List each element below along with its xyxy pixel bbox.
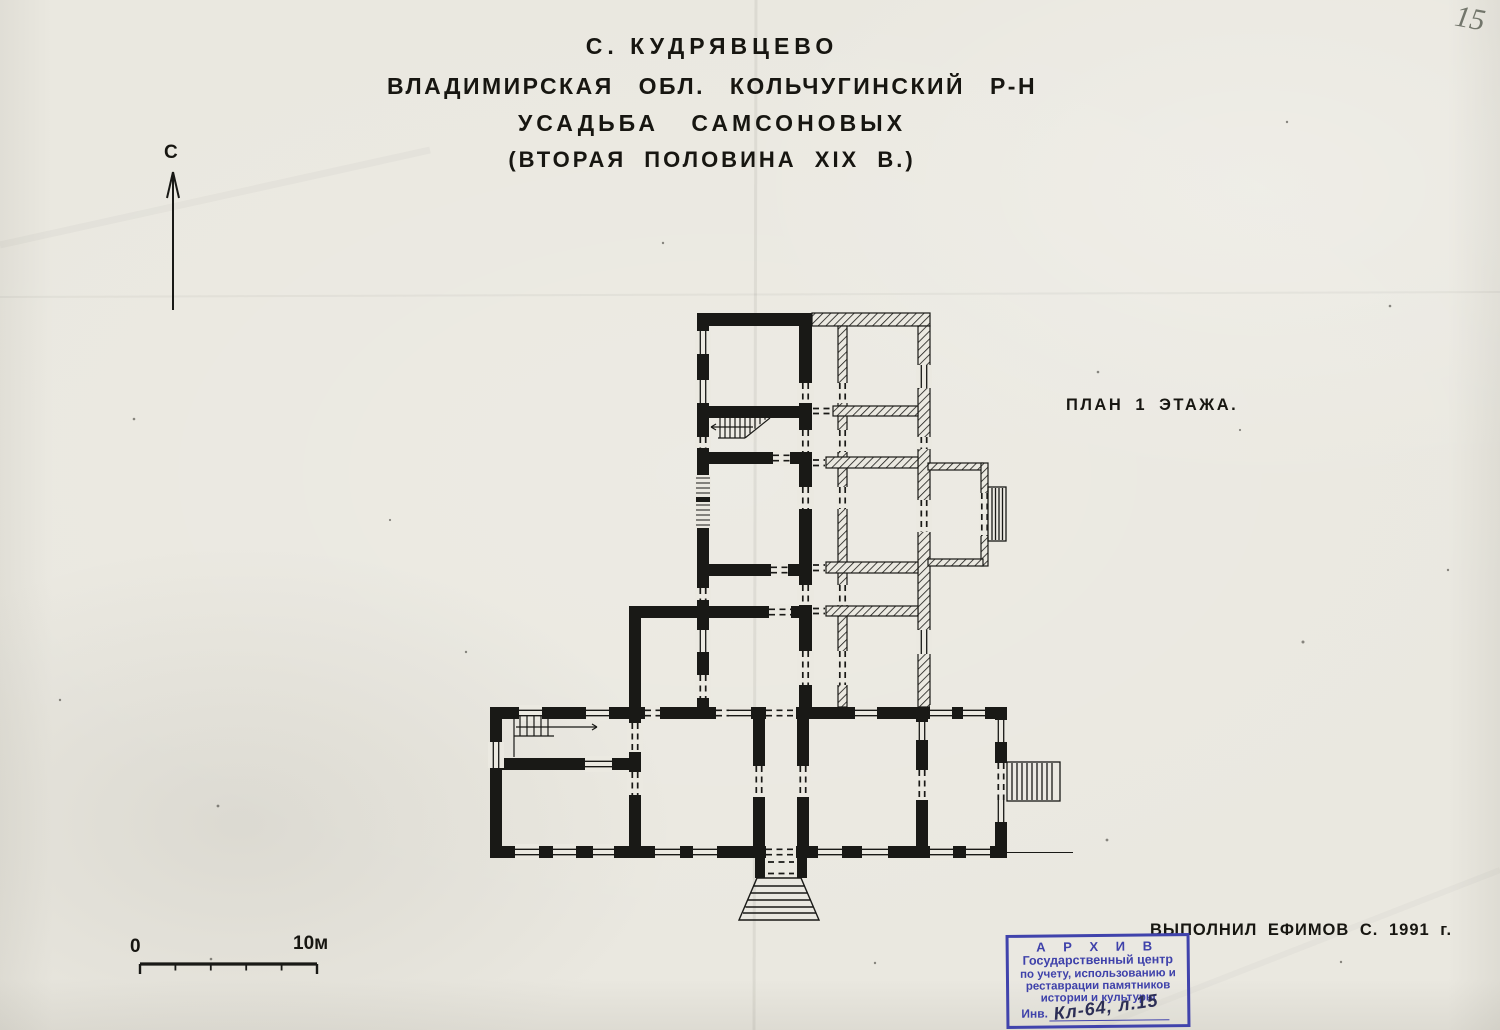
stamp-inventory-row: Инв. Кл-64, л.15 bbox=[1009, 1006, 1187, 1021]
side-porch-steps bbox=[1007, 762, 1073, 853]
archive-stamp: А Р Х И В Государственный центр по учету… bbox=[1006, 933, 1191, 1029]
plan-title: ПЛАН 1 ЭТАЖА. bbox=[1066, 396, 1238, 415]
title-period: (ВТОРАЯ ПОЛОВИНА XIX В.) bbox=[62, 147, 1362, 173]
scanned-drawing-page: С. КУДРЯВЦЕВО ВЛАДИМИРСКАЯ ОБЛ. КОЛЬЧУГИ… bbox=[0, 0, 1500, 1030]
title-region: ВЛАДИМИРСКАЯ ОБЛ. КОЛЬЧУГИНСКИЙ Р-Н bbox=[62, 73, 1362, 100]
bay-porch-steps bbox=[988, 487, 1006, 541]
entrance-porch-steps bbox=[739, 878, 819, 920]
stamp-org-line3: реставрации памятников bbox=[1009, 979, 1187, 993]
service-stair bbox=[514, 716, 597, 757]
floor-plan-drawing bbox=[488, 313, 1073, 920]
north-arrow-icon bbox=[167, 172, 179, 310]
credit-line: ВЫПОЛНИЛ ЕФИМОВ С. 1991 г. bbox=[1150, 921, 1452, 940]
stamp-org-line1: Государственный центр bbox=[1009, 953, 1187, 968]
title-block: С. КУДРЯВЦЕВО ВЛАДИМИРСКАЯ ОБЛ. КОЛЬЧУГИ… bbox=[62, 33, 1362, 173]
stamp-inventory-label: Инв. bbox=[1021, 1006, 1048, 1020]
hatched-walls bbox=[812, 313, 988, 707]
scale-end-label: 10м bbox=[293, 933, 328, 955]
scale-start-label: 0 bbox=[130, 936, 141, 958]
title-estate: УСАДЬБА САМСОНОВЫХ bbox=[62, 110, 1362, 137]
title-village: С. КУДРЯВЦЕВО bbox=[62, 33, 1362, 60]
north-label: С bbox=[164, 142, 178, 164]
handwritten-page-number: 15 bbox=[1452, 0, 1487, 38]
scale-bar bbox=[140, 964, 317, 974]
door-opening-dashes bbox=[632, 383, 1003, 874]
main-stair bbox=[711, 418, 770, 438]
